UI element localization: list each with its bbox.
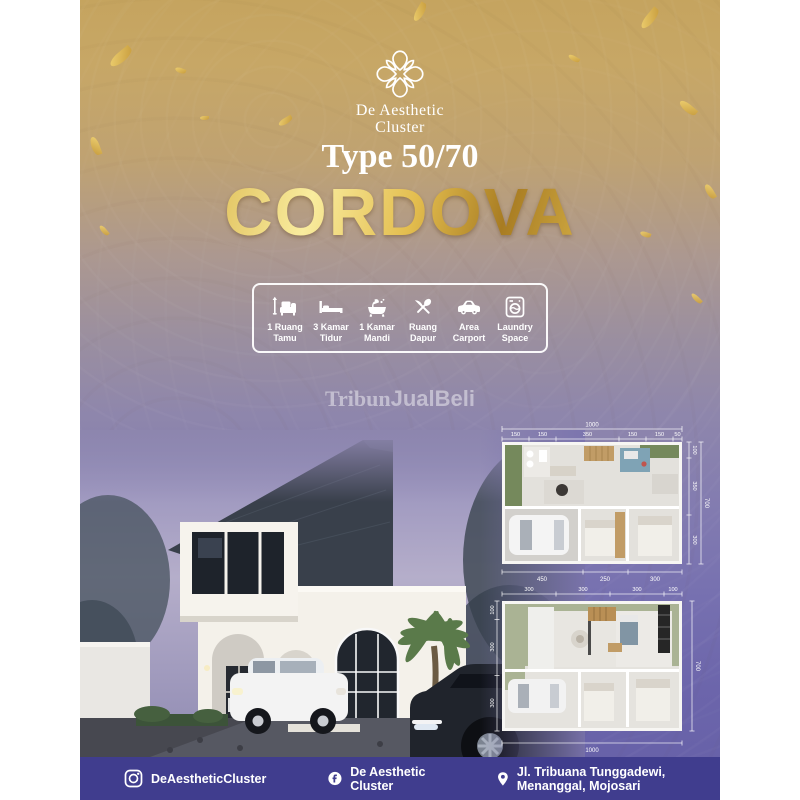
car-icon	[446, 293, 492, 319]
svg-text:300: 300	[578, 587, 587, 593]
feature-kamar-mandi: 1 KamarMandi	[354, 293, 400, 343]
feature-area-carport: AreaCarport	[446, 293, 492, 343]
location-pin-icon	[497, 769, 509, 789]
svg-text:150: 150	[511, 432, 520, 438]
svg-text:350: 350	[583, 432, 592, 438]
floorplan-1: 1000 150 150 350 150 150 50 100 350 300 …	[492, 420, 720, 585]
tribunjualbeli-watermark: TribunJualBeli	[80, 386, 720, 412]
svg-text:300: 300	[490, 642, 496, 651]
features-bar: 1 RuangTamu 3 KamarTidur	[252, 283, 548, 353]
svg-text:150: 150	[628, 432, 637, 438]
feature-label: RuangDapur	[400, 322, 446, 343]
flower-logo-icon	[374, 48, 426, 100]
facebook-icon	[328, 769, 342, 788]
svg-text:300: 300	[490, 698, 496, 707]
address-item[interactable]: Jl. Tribuana Tunggadewi, Menanggal, Mojo…	[497, 765, 720, 793]
instagram-link[interactable]: DeAestheticCluster	[124, 769, 266, 788]
svg-text:300: 300	[524, 587, 533, 593]
svg-text:150: 150	[655, 432, 664, 438]
svg-text:300: 300	[632, 587, 641, 593]
svg-text:150: 150	[538, 432, 547, 438]
feature-label: AreaCarport	[446, 322, 492, 343]
cutlery-icon	[400, 293, 446, 319]
product-title: CORDOVA	[80, 178, 720, 248]
svg-text:450: 450	[537, 577, 548, 583]
floorplans: 1000 150 150 350 150 150 50 100 350 300 …	[492, 420, 720, 765]
brand-logo: De Aesthetic Cluster	[80, 48, 720, 136]
brand-name-line1: De Aesthetic	[80, 102, 720, 119]
poster: De Aesthetic Cluster Type 50/70 CORDOVA …	[80, 0, 720, 800]
feature-kamar-tidur: 3 KamarTidur	[308, 293, 354, 343]
svg-text:100: 100	[668, 587, 677, 593]
washer-icon	[492, 293, 538, 319]
facebook-link[interactable]: De Aesthetic Cluster	[328, 765, 439, 793]
footer-bar: DeAestheticCluster De Aesthetic Cluster …	[80, 757, 720, 800]
feature-label: 1 KamarMandi	[354, 322, 400, 343]
svg-text:1000: 1000	[585, 748, 599, 754]
feature-label: 1 RuangTamu	[262, 322, 308, 343]
feature-label: 3 KamarTidur	[308, 322, 354, 343]
instagram-icon	[124, 769, 143, 788]
instagram-handle: DeAestheticCluster	[151, 772, 266, 786]
svg-text:700: 700	[694, 661, 700, 672]
svg-text:100: 100	[490, 605, 496, 614]
gold-leaf	[690, 292, 703, 305]
facebook-name: De Aesthetic Cluster	[350, 765, 439, 793]
svg-text:50: 50	[674, 432, 680, 438]
wall-lamp	[204, 665, 210, 671]
brand-name-line2: Cluster	[80, 119, 720, 136]
svg-text:700: 700	[703, 498, 709, 509]
svg-text:100: 100	[691, 445, 697, 454]
svg-text:1000: 1000	[585, 423, 599, 429]
floorplan-2: 300 300 300 100	[492, 585, 720, 763]
svg-text:300: 300	[650, 577, 661, 583]
type-label: Type 50/70	[80, 138, 720, 176]
feature-label: LaundrySpace	[492, 322, 538, 343]
svg-text:300: 300	[691, 535, 697, 544]
gold-leaf	[639, 6, 661, 30]
poster-page: De Aesthetic Cluster Type 50/70 CORDOVA …	[0, 0, 800, 800]
feature-laundry-space: LaundrySpace	[492, 293, 538, 343]
feature-ruang-tamu: 1 RuangTamu	[262, 293, 308, 343]
address-text: Jl. Tribuana Tunggadewi, Menanggal, Mojo…	[517, 765, 720, 793]
sofa-icon	[262, 293, 308, 319]
svg-text:350: 350	[691, 481, 697, 490]
svg-text:250: 250	[600, 577, 611, 583]
bed-icon	[308, 293, 354, 319]
bathtub-icon	[354, 293, 400, 319]
gold-leaf	[412, 1, 429, 22]
feature-ruang-dapur: RuangDapur	[400, 293, 446, 343]
